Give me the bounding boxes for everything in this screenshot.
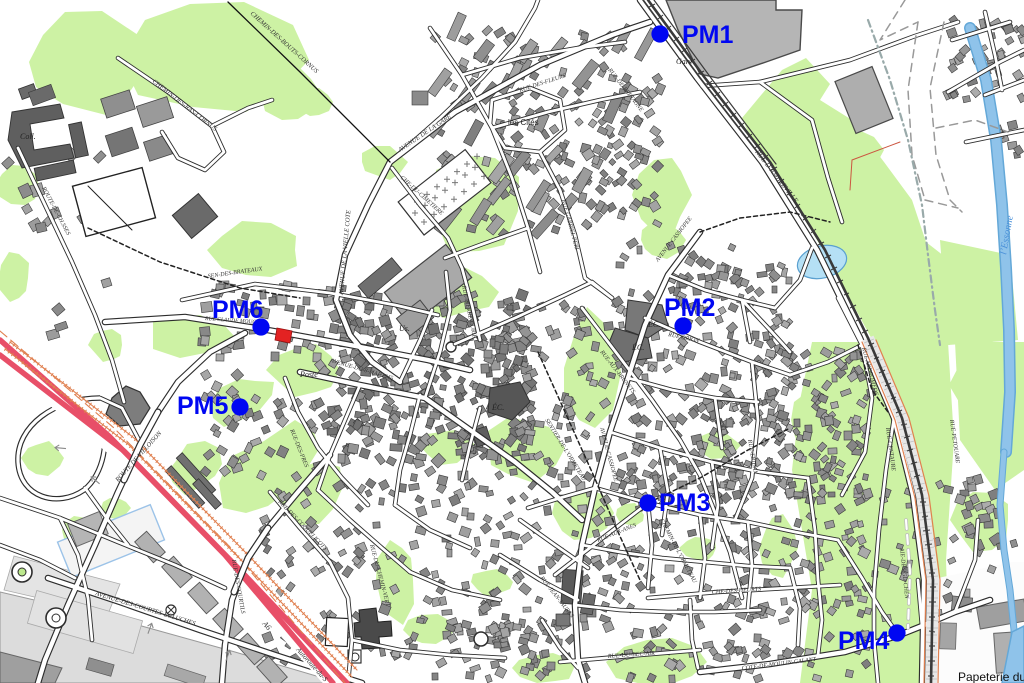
- svg-text:PM4: PM4: [838, 627, 890, 655]
- svg-text:Us.: Us.: [399, 324, 410, 333]
- svg-text:les Cités: les Cités: [508, 118, 539, 127]
- svg-text:Gare: Gare: [676, 57, 693, 66]
- svg-text:Coll.: Coll.: [20, 132, 36, 141]
- svg-text:PM2: PM2: [664, 294, 715, 322]
- svg-text:PM5: PM5: [177, 392, 229, 420]
- svg-text:PM6: PM6: [212, 296, 263, 324]
- svg-text:PM1: PM1: [682, 21, 734, 49]
- svg-text:ÉC.: ÉC.: [631, 342, 644, 352]
- svg-text:Papeterie du: Papeterie du: [958, 670, 1024, 683]
- svg-text:PM3: PM3: [659, 489, 710, 517]
- svg-text:Poste: Poste: [299, 370, 318, 379]
- svg-text:ÉC.: ÉC.: [647, 319, 660, 329]
- svg-text:ÉC.: ÉC.: [491, 402, 504, 412]
